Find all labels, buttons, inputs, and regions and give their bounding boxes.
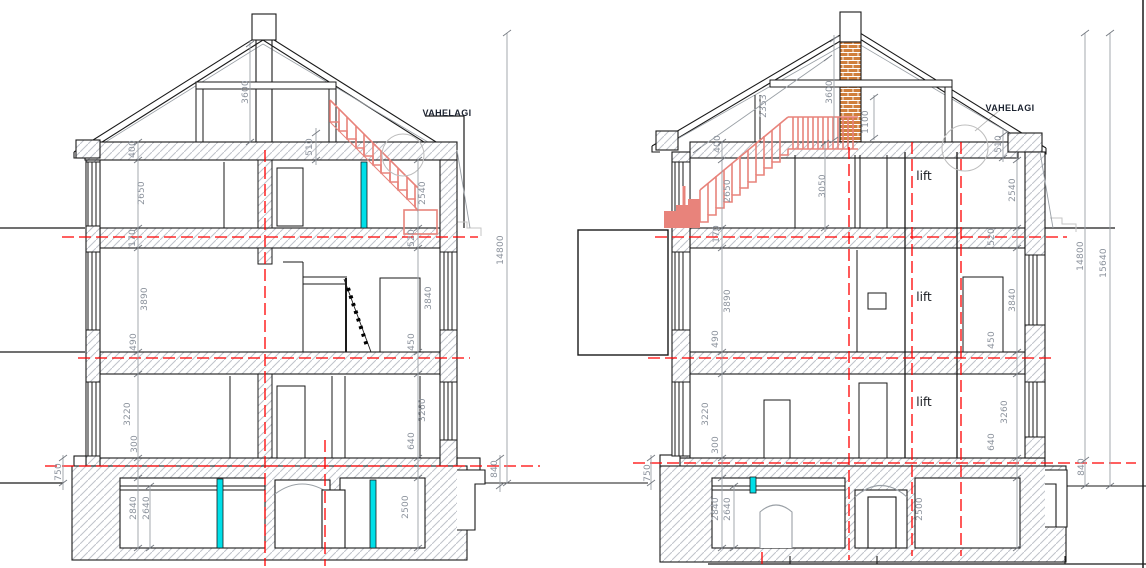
dim-label-total-height: 14800 bbox=[1076, 241, 1086, 271]
dim-label: 2540 bbox=[1008, 178, 1018, 202]
dim-label: 750 bbox=[54, 463, 64, 481]
right-section bbox=[578, 12, 1146, 564]
vahelagi-label-left: VAHELAGI bbox=[422, 108, 471, 118]
attic-structure-left bbox=[196, 82, 336, 142]
dim-label: 520 bbox=[987, 228, 997, 246]
dim-label-total-height: 15640 bbox=[1099, 248, 1109, 278]
dim-label: 2353 bbox=[759, 94, 769, 118]
dim-label: 3050 bbox=[818, 174, 828, 198]
dim-label: 300 bbox=[711, 436, 721, 454]
dim-label: 1100 bbox=[861, 110, 871, 134]
interior-left bbox=[224, 160, 420, 458]
dim-label: 750 bbox=[643, 464, 653, 482]
lift-label: lift bbox=[916, 395, 931, 409]
dim-label: 2500 bbox=[401, 495, 411, 519]
dim-label: 3260 bbox=[1000, 400, 1010, 424]
left-section bbox=[0, 14, 648, 566]
dim-label: 3220 bbox=[701, 402, 711, 426]
dim-label: 2640 bbox=[723, 497, 733, 521]
dim-label: 510 bbox=[305, 138, 315, 156]
dim-label: 640 bbox=[407, 432, 417, 450]
dim-label: 520 bbox=[407, 229, 417, 247]
dim-label: 3260 bbox=[418, 398, 428, 422]
dim-label: 3890 bbox=[723, 289, 733, 313]
chimney-left bbox=[252, 14, 276, 142]
dim-label: 170 bbox=[128, 229, 138, 247]
lift-label: lift bbox=[916, 169, 931, 183]
stair-red-right bbox=[664, 117, 858, 228]
dim-label: 3600 bbox=[825, 80, 835, 104]
section-linework bbox=[0, 0, 1146, 568]
cross-section-drawing: 3600 400 510 2650 2540 170 520 3890 3840… bbox=[0, 0, 1146, 568]
dim-label: 2840 bbox=[129, 496, 139, 520]
dim-label: 400 bbox=[713, 135, 723, 153]
dim-label: 3220 bbox=[123, 402, 133, 426]
dim-label-total-height: 14800 bbox=[496, 235, 506, 265]
dim-label: 2650 bbox=[137, 181, 147, 205]
dim-label: 2840 bbox=[711, 497, 721, 521]
dim-label: 510 bbox=[994, 135, 1004, 153]
dim-label: 2650 bbox=[723, 179, 733, 203]
dim-label: 450 bbox=[987, 331, 997, 349]
interior-right bbox=[764, 152, 1003, 458]
stair-red-left bbox=[330, 100, 437, 234]
lift-label: lift bbox=[916, 290, 931, 304]
dim-label: 840 bbox=[490, 460, 500, 478]
dim-label: 640 bbox=[987, 433, 997, 451]
dim-label: 2640 bbox=[142, 496, 152, 520]
dim-label: 490 bbox=[129, 333, 139, 351]
dim-label: 3600 bbox=[241, 80, 251, 104]
dim-label: 3840 bbox=[424, 286, 434, 310]
dim-label: 840 bbox=[1077, 458, 1087, 476]
dim-label: 3840 bbox=[1008, 288, 1018, 312]
dim-label: 450 bbox=[407, 333, 417, 351]
dim-label: 400 bbox=[128, 140, 138, 158]
dim-label: 3890 bbox=[140, 287, 150, 311]
vahelagi-label-right: VAHELAGI bbox=[985, 103, 1034, 113]
dim-label: 170 bbox=[712, 225, 722, 243]
dim-label: 2500 bbox=[915, 497, 925, 521]
dim-label: 300 bbox=[130, 435, 140, 453]
stair-black-left bbox=[344, 279, 371, 352]
dim-label: 2540 bbox=[418, 181, 428, 205]
cyan-door-right bbox=[750, 477, 756, 493]
dim-label: 490 bbox=[711, 330, 721, 348]
